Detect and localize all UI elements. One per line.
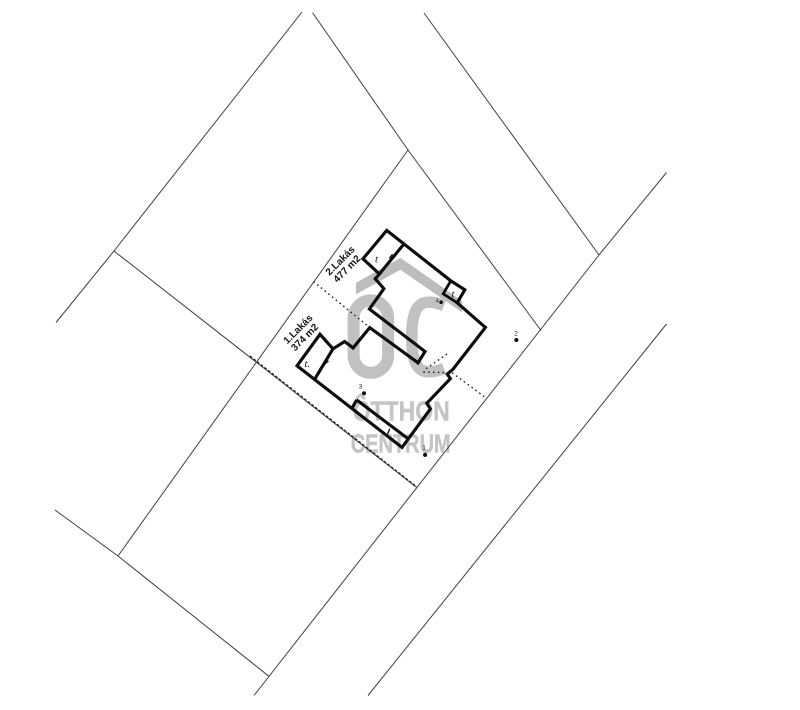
svg-text:1: 1: [422, 445, 426, 452]
svg-text:2: 2: [514, 331, 518, 338]
svg-text:3: 3: [359, 384, 363, 391]
svg-text:t.: t.: [305, 359, 311, 370]
